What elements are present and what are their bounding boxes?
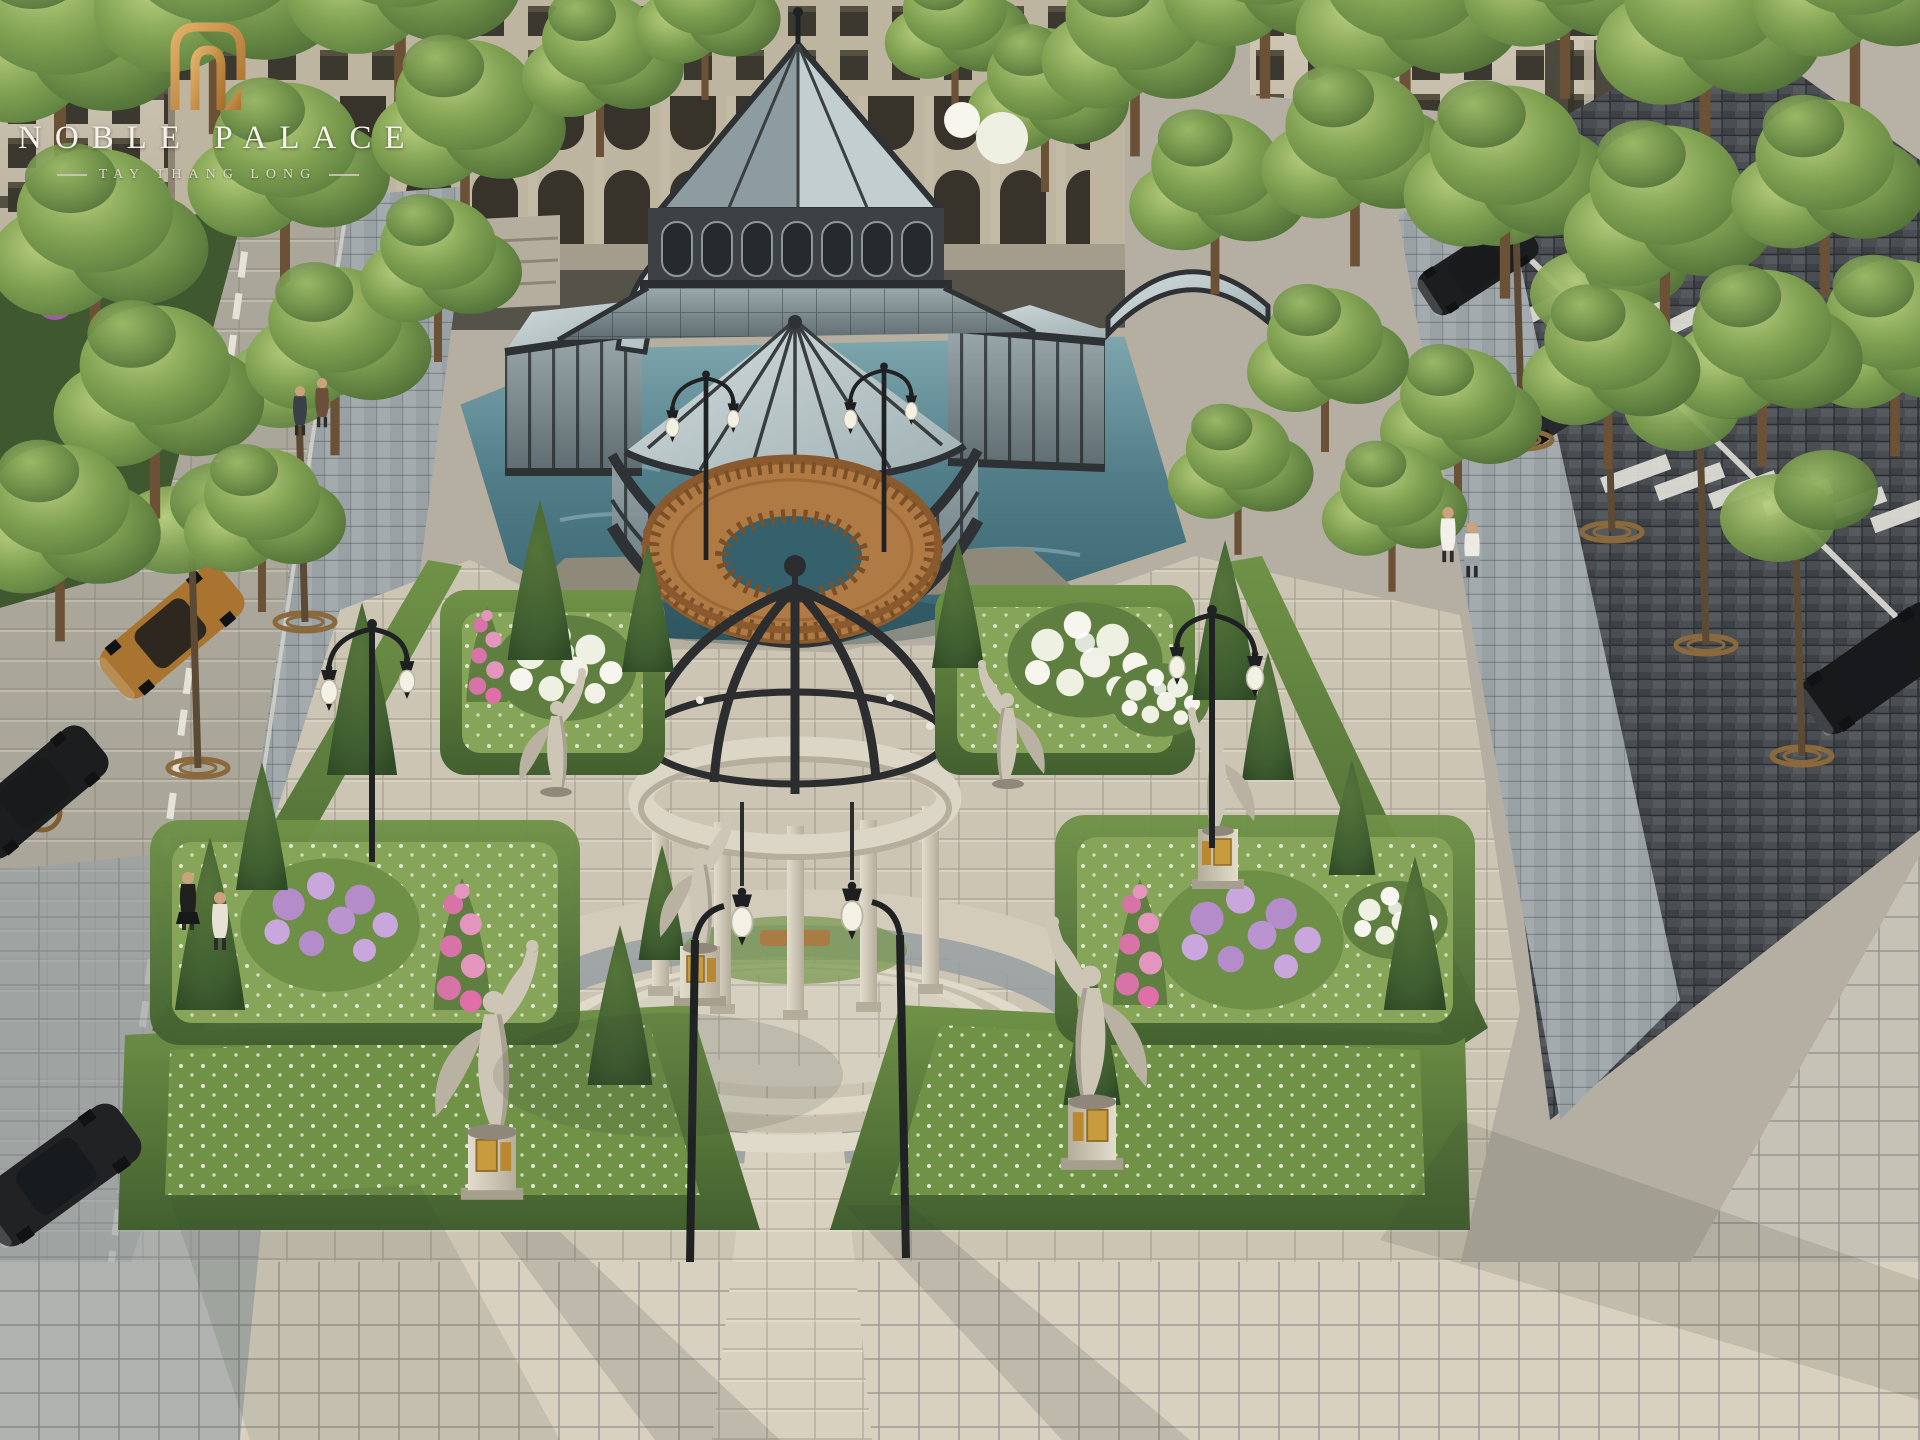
clerestory: [640, 208, 952, 290]
bed-northeast: [935, 585, 1210, 775]
tagline-dash-right: [329, 174, 359, 176]
white-blossom-cluster: [944, 102, 980, 138]
brand-logo: NOBLE PALACE TAY THANG LONG: [18, 18, 398, 183]
white-blossom-cluster: [976, 112, 1028, 164]
rendering-canvas: NOBLE PALACE TAY THANG LONG: [0, 0, 1920, 1440]
tagline-dash-left: [57, 174, 87, 176]
purple-rose-bush: [1156, 870, 1343, 1009]
brand-tagline: TAY THANG LONG: [99, 167, 317, 183]
dome-finial: [784, 555, 806, 577]
brand-tagline-row: TAY THANG LONG: [18, 167, 398, 183]
brand-name: NOBLE PALACE: [18, 120, 398, 157]
noble-palace-monogram-icon: [166, 18, 250, 114]
scene-illustration: [0, 0, 1920, 1440]
